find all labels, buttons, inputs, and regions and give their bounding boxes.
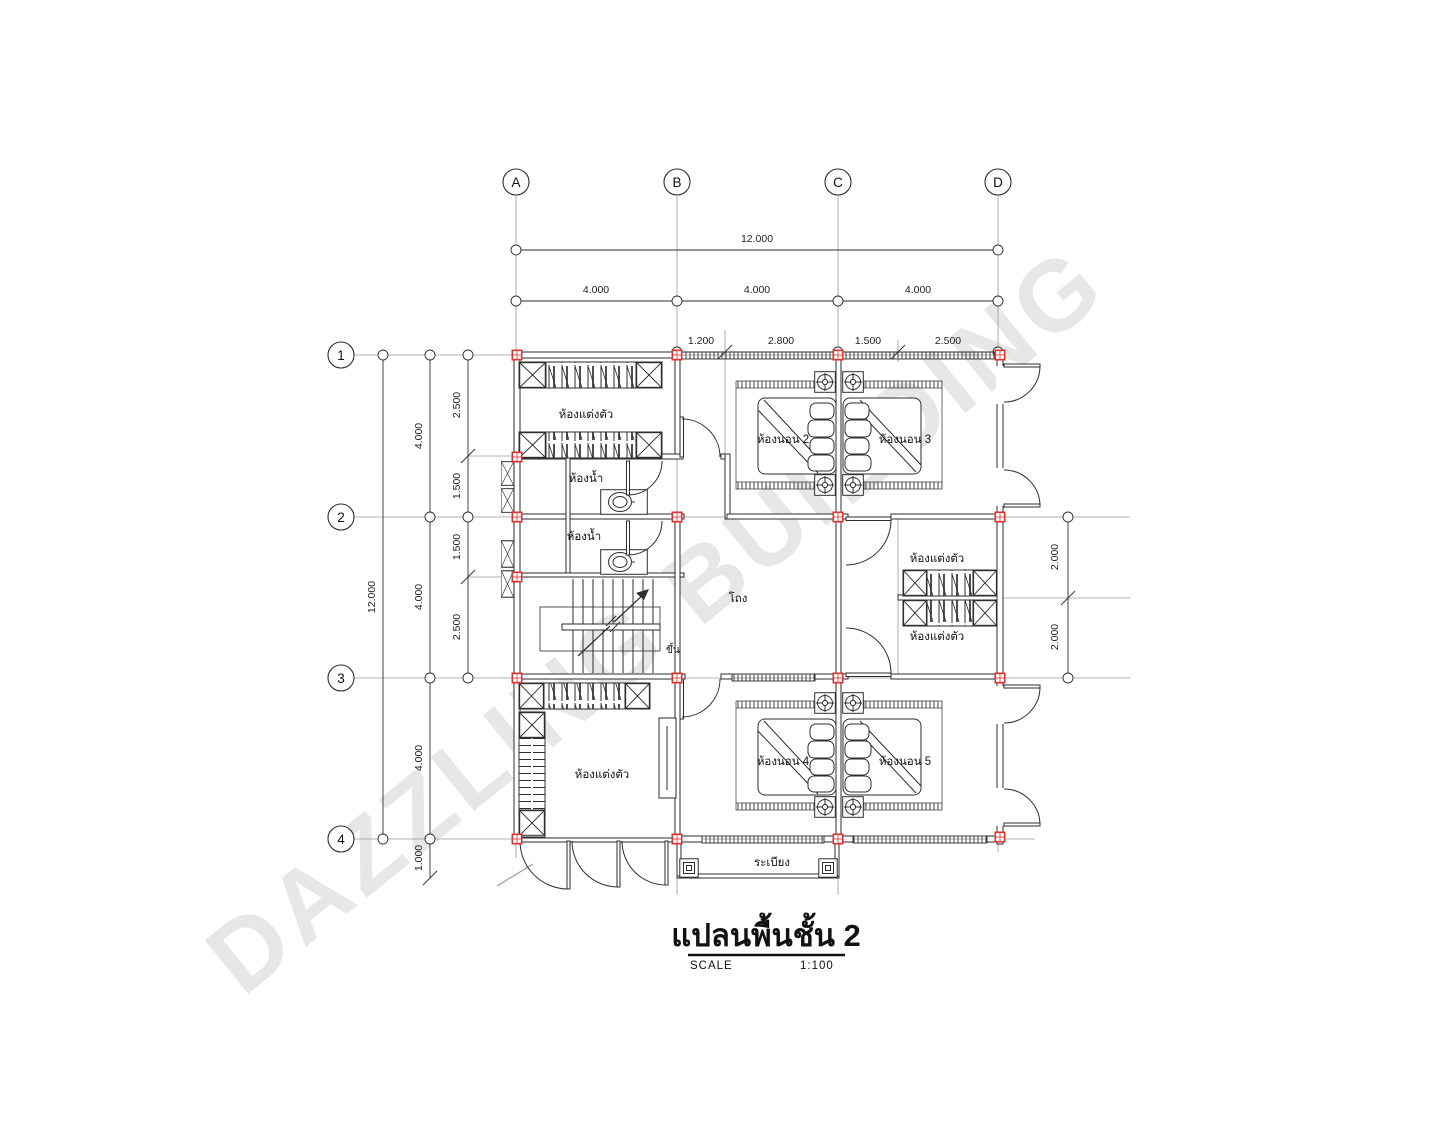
dim-left-span-23: 4.000 [413,584,425,610]
dim-left-span-12: 4.000 [413,423,425,449]
dim-left-sub-1: 2.500 [451,392,463,418]
closet-top-left-1 [519,362,662,388]
floor-plan-sheet: DAZZLING BUILDING [0,0,1431,1145]
door-east-bedroom5-lower [1004,789,1040,826]
scale-label: SCALE [690,960,733,972]
dim-right-sub-2: 2.000 [1049,624,1061,650]
label-dressing-right-lower: ห้องแต่งตัว [910,630,965,643]
label-bathroom-lower: ห้องน้ำ [567,528,601,543]
label-balcony: ระเบียง [754,856,790,869]
door-bedroom2 [680,417,720,457]
window-row3-bc [732,674,815,681]
dim-right-sub-1: 2.000 [1049,544,1061,570]
window-south-bc [702,836,824,843]
grid-bubble-4: 4 [337,832,345,847]
drawing-title: แปลนพื้นชั้น 2 [671,912,861,953]
closet-right-upper [903,570,997,596]
dim-top-sub-4: 2.500 [935,335,961,347]
dim-top-span-bc: 4.000 [744,284,770,296]
folding-doors-south [520,841,668,889]
toilet-lower [601,550,648,575]
closet-bottom-left-top [519,683,650,709]
label-bedroom3: ห้องนอน 3 [879,433,931,446]
label-dressing-top-left: ห้องแต่งตัว [559,408,614,421]
dim-left-total: 12.000 [366,581,378,613]
label-hall: โถง [729,591,748,605]
closet-top-left-2 [519,432,662,458]
label-bedroom5: ห้องนอน 5 [879,755,931,768]
closet-bottom-left-side [519,712,545,837]
dim-top-sub-2: 2.800 [768,335,794,347]
dim-top-span-cd: 4.000 [905,284,931,296]
floor-plan-drawing: DAZZLING BUILDING [0,0,1431,1145]
dim-left-sub-2: 1.500 [451,473,463,499]
dim-top-span-ab: 4.000 [583,284,609,296]
dim-left-balcony: 1.000 [413,845,425,871]
grid-bubble-3: 3 [337,671,345,686]
dim-left-sub-4: 2.500 [451,614,463,640]
grid-bubble-a: A [511,175,520,190]
label-bedroom4: ห้องนอน 4 [757,755,810,768]
door-east-bedroom3-lower [1004,470,1040,507]
label-dressing-right-upper: ห้องแต่งตัว [910,552,965,565]
closet-right-lower [903,600,997,626]
toilet-upper [601,490,648,515]
dim-top-sub-3: 1.500 [855,335,881,347]
dim-left-sub-3: 1.500 [451,534,463,560]
door-bedroom4 [680,679,720,719]
grid-bubble-c: C [833,175,843,190]
door-east-bedroom5-upper [1004,685,1040,723]
grid-bubble-2: 2 [337,510,345,525]
window-south-cd [853,836,987,843]
dim-left-span-34: 4.000 [413,745,425,771]
label-dressing-bottom-left: ห้องแต่งตัว [575,768,630,781]
window-north-cd [841,352,997,359]
grid-bubble-b: B [672,175,681,190]
grid-bubble-d: D [993,175,1003,190]
grid-bubble-1: 1 [337,348,345,363]
label-bedroom2: ห้องนอน 2 [757,433,809,446]
dim-top-total: 12.000 [741,233,773,245]
label-stair-up: ขึ้น [666,642,680,656]
scale-value: 1:100 [800,960,834,972]
window-north-bc [681,352,836,359]
label-bathroom-upper: ห้องน้ำ [569,470,603,485]
door-dressing-right-lower [846,628,891,677]
title-block: แปลนพื้นชั้น 2 SCALE 1:100 [671,912,861,972]
mirror-panel [659,718,676,798]
dim-top-sub-1: 1.200 [688,335,714,347]
